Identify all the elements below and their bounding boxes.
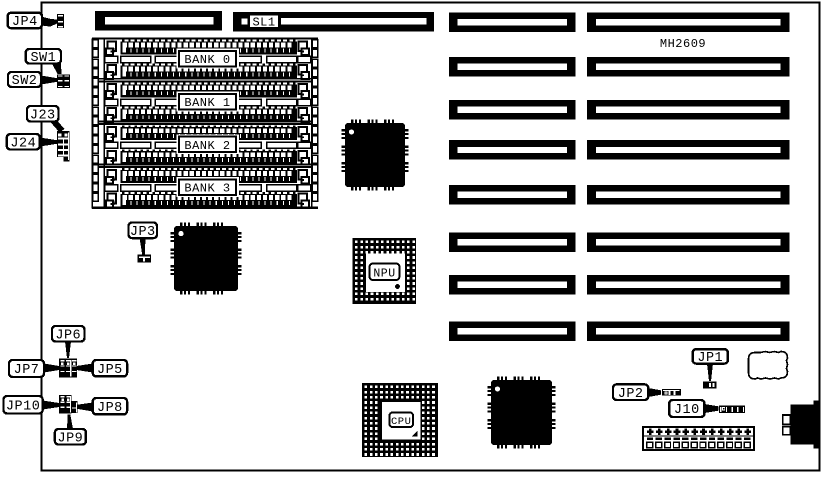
svg-text:JP4: JP4 [12, 15, 38, 30]
svg-text:SW2: SW2 [12, 74, 38, 89]
svg-text:JP9: JP9 [57, 431, 83, 446]
svg-text:J10: J10 [674, 403, 700, 418]
svg-text:JP2: JP2 [618, 387, 644, 402]
svg-text:BANK 2: BANK 2 [184, 139, 230, 153]
svg-text:JP6: JP6 [55, 328, 81, 343]
svg-text:JP5: JP5 [97, 363, 123, 378]
svg-text:CPU: CPU [391, 416, 411, 428]
svg-text:JP3: JP3 [130, 225, 156, 240]
svg-text:JP8: JP8 [97, 401, 123, 416]
svg-text:J23: J23 [30, 108, 56, 123]
svg-text:BANK 0: BANK 0 [184, 53, 230, 67]
svg-text:SL1: SL1 [252, 15, 275, 29]
svg-text:JP7: JP7 [14, 363, 40, 378]
svg-text:BANK 3: BANK 3 [184, 182, 230, 196]
svg-text:NPU: NPU [373, 268, 395, 281]
svg-text:MH2609: MH2609 [660, 37, 706, 51]
svg-text:BANK 1: BANK 1 [184, 96, 230, 110]
svg-text:JP10: JP10 [6, 399, 40, 414]
svg-text:J24: J24 [10, 136, 36, 151]
